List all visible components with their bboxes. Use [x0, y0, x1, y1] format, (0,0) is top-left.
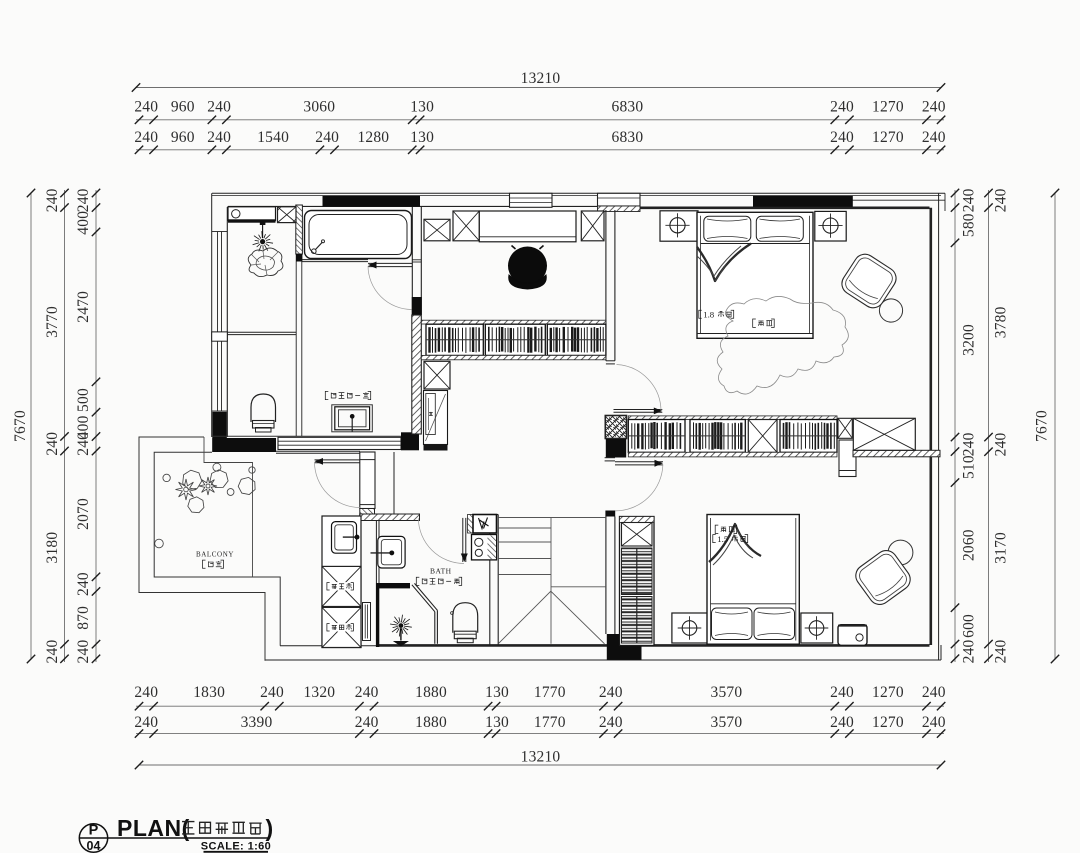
- svg-text:240: 240: [75, 432, 92, 456]
- svg-text:13210: 13210: [521, 70, 561, 87]
- svg-text:2070: 2070: [75, 498, 92, 530]
- svg-text:240: 240: [134, 99, 158, 116]
- svg-text:P: P: [89, 823, 99, 839]
- svg-text:240: 240: [830, 99, 854, 116]
- svg-text:240: 240: [993, 639, 1010, 663]
- svg-text:3570: 3570: [711, 714, 743, 731]
- svg-text:3180: 3180: [44, 532, 61, 564]
- svg-text:1830: 1830: [193, 684, 225, 701]
- svg-text:3390: 3390: [241, 714, 273, 731]
- svg-text:240: 240: [599, 684, 623, 701]
- svg-text:240: 240: [134, 714, 158, 731]
- svg-text:1270: 1270: [872, 714, 904, 731]
- svg-text:240: 240: [961, 188, 978, 212]
- svg-text:240: 240: [44, 640, 61, 664]
- svg-text:3200: 3200: [961, 324, 978, 356]
- svg-text:240: 240: [922, 714, 946, 731]
- svg-text:130: 130: [410, 99, 434, 116]
- svg-text:240: 240: [44, 432, 61, 456]
- svg-text:240: 240: [134, 129, 158, 146]
- svg-text:240: 240: [355, 684, 379, 701]
- svg-text:130: 130: [410, 129, 434, 146]
- svg-text:240: 240: [355, 714, 379, 731]
- svg-text:580: 580: [961, 213, 978, 237]
- svg-text:240: 240: [315, 129, 339, 146]
- svg-text:240: 240: [830, 714, 854, 731]
- svg-text:240: 240: [961, 639, 978, 663]
- svg-text:240: 240: [993, 188, 1010, 212]
- svg-text:870: 870: [75, 606, 92, 630]
- svg-text:3780: 3780: [993, 306, 1010, 338]
- svg-text:1540: 1540: [257, 129, 289, 146]
- svg-text:6830: 6830: [612, 129, 644, 146]
- svg-text:400: 400: [75, 211, 92, 235]
- svg-text:1.5: 1.5: [717, 534, 729, 544]
- svg-text:BALCONY: BALCONY: [196, 551, 234, 559]
- svg-text:240: 240: [207, 99, 231, 116]
- svg-text:1270: 1270: [872, 99, 904, 116]
- svg-text:1880: 1880: [415, 684, 447, 701]
- svg-text:04: 04: [87, 839, 101, 853]
- svg-text:130: 130: [485, 714, 509, 731]
- svg-text:SCALE: 1:60: SCALE: 1:60: [201, 841, 271, 853]
- svg-text:500: 500: [75, 388, 92, 412]
- svg-text:240: 240: [922, 99, 946, 116]
- svg-text:6830: 6830: [612, 99, 644, 116]
- svg-text:3570: 3570: [711, 684, 743, 701]
- svg-text:960: 960: [171, 99, 195, 116]
- svg-text:240: 240: [44, 188, 61, 212]
- svg-text:1770: 1770: [534, 714, 566, 731]
- svg-text:): ): [266, 815, 274, 841]
- svg-text:240: 240: [207, 129, 231, 146]
- svg-text:240: 240: [260, 684, 284, 701]
- svg-text:600: 600: [961, 614, 978, 638]
- svg-text:240: 240: [599, 714, 623, 731]
- svg-text:1770: 1770: [534, 684, 566, 701]
- svg-text:1320: 1320: [303, 684, 335, 701]
- svg-text:2470: 2470: [75, 291, 92, 323]
- svg-text:1270: 1270: [872, 129, 904, 146]
- svg-text:3170: 3170: [993, 532, 1010, 564]
- svg-text:240: 240: [75, 640, 92, 664]
- svg-text:PLAN(: PLAN(: [117, 815, 190, 841]
- svg-text:7670: 7670: [12, 410, 29, 442]
- svg-text:3060: 3060: [303, 99, 335, 116]
- svg-text:240: 240: [993, 432, 1010, 456]
- svg-text:240: 240: [922, 129, 946, 146]
- svg-text:1.8: 1.8: [703, 310, 715, 320]
- svg-text:240: 240: [75, 572, 92, 596]
- svg-text:BATH: BATH: [430, 567, 452, 576]
- svg-text:130: 130: [485, 684, 509, 701]
- svg-text:1270: 1270: [872, 684, 904, 701]
- svg-text:1280: 1280: [357, 129, 389, 146]
- svg-text:1880: 1880: [415, 714, 447, 731]
- svg-text:7670: 7670: [1034, 410, 1051, 442]
- svg-text:240: 240: [961, 432, 978, 456]
- svg-text:240: 240: [830, 129, 854, 146]
- svg-text:240: 240: [134, 684, 158, 701]
- svg-text:3770: 3770: [44, 306, 61, 338]
- svg-text:13210: 13210: [521, 749, 561, 766]
- svg-text:240: 240: [922, 684, 946, 701]
- svg-text:240: 240: [75, 188, 92, 212]
- svg-text:960: 960: [171, 129, 195, 146]
- svg-text:240: 240: [830, 684, 854, 701]
- svg-text:2060: 2060: [961, 529, 978, 561]
- svg-text:510: 510: [961, 455, 978, 479]
